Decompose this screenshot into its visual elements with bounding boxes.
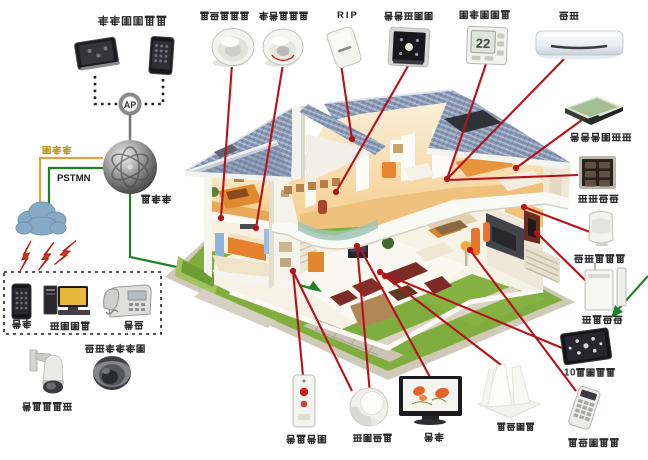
svg-text:RIP: RIP [337, 10, 359, 21]
svg-text:22: 22 [476, 36, 491, 51]
svg-text:AP: AP [124, 100, 137, 110]
svg-text:PSTMN: PSTMN [57, 173, 91, 184]
svg-text:0: 0 [570, 368, 575, 379]
